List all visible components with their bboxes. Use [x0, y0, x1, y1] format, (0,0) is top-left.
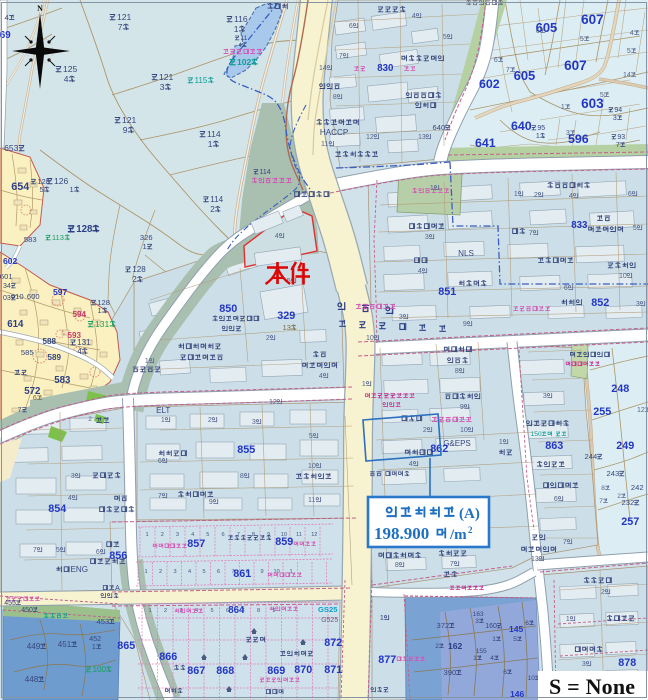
svg-text:1: 1	[234, 24, 239, 34]
svg-text:4: 4	[569, 193, 573, 200]
svg-text:6: 6	[349, 23, 353, 30]
svg-text:115: 115	[195, 76, 208, 85]
svg-text:HACCP: HACCP	[320, 128, 348, 137]
svg-text:865: 865	[117, 640, 135, 652]
svg-text:128: 128	[37, 177, 50, 186]
svg-text:155: 155	[476, 648, 487, 655]
svg-text:5: 5	[309, 433, 313, 440]
svg-text:5: 5	[633, 225, 637, 232]
svg-text:ELT: ELT	[156, 406, 170, 415]
svg-text:8: 8	[395, 562, 399, 569]
svg-text:11: 11	[308, 497, 315, 504]
svg-text:(A): (A)	[459, 506, 480, 522]
svg-text:594: 594	[73, 310, 87, 319]
svg-text:113: 113	[52, 233, 64, 242]
svg-text:5: 5	[627, 48, 631, 55]
svg-text:6: 6	[564, 285, 568, 292]
svg-text:854: 854	[48, 503, 66, 515]
svg-text:600: 600	[27, 292, 40, 301]
svg-text:451: 451	[58, 640, 72, 649]
svg-text:11: 11	[241, 35, 248, 42]
svg-text:872: 872	[324, 637, 342, 649]
svg-text:589: 589	[48, 353, 62, 362]
svg-text:640: 640	[433, 123, 446, 132]
svg-text:869: 869	[267, 665, 285, 677]
svg-text:640: 640	[511, 119, 532, 133]
svg-text:597: 597	[53, 287, 68, 297]
svg-text:868: 868	[216, 665, 234, 677]
svg-text:607: 607	[564, 58, 587, 73]
svg-text:150: 150	[531, 431, 542, 438]
svg-text:9: 9	[463, 321, 467, 328]
svg-text:1: 1	[70, 185, 74, 194]
svg-text:862: 862	[430, 443, 448, 455]
svg-text:2: 2	[435, 643, 439, 650]
svg-text:1: 1	[92, 644, 96, 651]
svg-text:6: 6	[628, 191, 632, 198]
svg-text:2: 2	[601, 589, 605, 596]
svg-text:6: 6	[222, 532, 225, 538]
svg-text:6: 6	[158, 458, 162, 465]
svg-text:163: 163	[473, 611, 484, 618]
svg-text:2: 2	[423, 427, 427, 434]
svg-text:605: 605	[514, 68, 536, 83]
svg-text:583: 583	[54, 375, 71, 386]
svg-text:871: 871	[324, 664, 342, 676]
svg-text:8: 8	[601, 485, 605, 492]
svg-text:8: 8	[240, 473, 244, 480]
svg-text:3: 3	[582, 661, 586, 668]
svg-text:1: 1	[161, 417, 165, 424]
svg-text:585: 585	[21, 348, 34, 357]
svg-text:5: 5	[443, 34, 447, 41]
svg-text:7: 7	[450, 561, 454, 568]
svg-text:7: 7	[158, 493, 162, 500]
svg-text:390: 390	[444, 668, 457, 677]
svg-text:870: 870	[294, 664, 312, 676]
svg-text:452: 452	[89, 636, 101, 643]
svg-text:372: 372	[437, 621, 450, 630]
svg-text:861: 861	[233, 568, 251, 580]
svg-text:602: 602	[3, 256, 18, 266]
svg-text:10: 10	[528, 675, 536, 682]
svg-text:1: 1	[536, 133, 540, 140]
svg-text:6: 6	[96, 549, 100, 556]
svg-text:3: 3	[636, 301, 640, 308]
svg-text:94: 94	[614, 107, 622, 114]
svg-text:588: 588	[43, 337, 57, 346]
svg-text:1: 1	[473, 655, 477, 662]
svg-text:102: 102	[237, 57, 252, 67]
svg-text:3: 3	[475, 618, 479, 625]
svg-text:8: 8	[333, 94, 337, 101]
svg-text:593: 593	[68, 331, 82, 340]
svg-text:34: 34	[3, 283, 11, 290]
svg-text:5: 5	[206, 532, 209, 538]
svg-text:1: 1	[208, 139, 213, 149]
svg-text:2: 2	[468, 525, 473, 535]
svg-text:2: 2	[617, 493, 621, 500]
svg-text:455: 455	[4, 600, 16, 607]
svg-text:864: 864	[228, 605, 245, 616]
svg-text:7: 7	[529, 230, 533, 237]
svg-text:7: 7	[563, 539, 567, 546]
svg-text:4: 4	[630, 30, 634, 37]
svg-text:3: 3	[613, 115, 617, 122]
svg-text:1: 1	[98, 306, 102, 315]
svg-text:ENG: ENG	[71, 565, 89, 574]
svg-text:852: 852	[591, 297, 609, 309]
svg-text:641: 641	[475, 136, 496, 150]
svg-text:248: 248	[611, 383, 629, 395]
svg-text:1: 1	[146, 532, 149, 538]
svg-text:1: 1	[566, 616, 570, 623]
svg-text:863: 863	[545, 440, 563, 452]
svg-text:G525: G525	[321, 617, 338, 624]
svg-text:830: 830	[377, 63, 393, 74]
svg-text:2: 2	[132, 275, 137, 284]
svg-text:5: 5	[580, 36, 584, 43]
svg-text:11: 11	[296, 532, 302, 538]
svg-text:4: 4	[77, 347, 82, 356]
svg-text:859: 859	[275, 536, 293, 548]
svg-text:95: 95	[537, 125, 545, 132]
svg-text:255: 255	[593, 406, 611, 418]
svg-text:607: 607	[581, 12, 604, 27]
svg-text:1: 1	[430, 185, 434, 192]
svg-text:1: 1	[143, 242, 147, 251]
svg-text:5: 5	[203, 569, 206, 575]
svg-text:160: 160	[485, 623, 497, 630]
svg-text:2: 2	[534, 192, 538, 199]
svg-text:450: 450	[21, 607, 33, 614]
svg-text:2: 2	[88, 416, 92, 423]
svg-text:14: 14	[319, 65, 327, 72]
svg-text:4: 4	[188, 569, 191, 575]
svg-text:7: 7	[339, 53, 343, 60]
svg-text:6: 6	[536, 28, 540, 35]
svg-text:257: 257	[621, 516, 639, 528]
svg-text:11: 11	[321, 141, 328, 148]
svg-text:100: 100	[93, 665, 107, 674]
svg-text:13: 13	[418, 134, 426, 141]
svg-text:1: 1	[561, 104, 565, 111]
svg-text:198.900: 198.900	[374, 524, 429, 543]
svg-text:121: 121	[122, 115, 137, 125]
svg-text:13: 13	[283, 323, 291, 332]
svg-text:145: 145	[509, 624, 524, 634]
svg-text:5: 5	[211, 608, 214, 614]
svg-text:448: 448	[25, 675, 39, 684]
svg-text:3: 3	[399, 314, 403, 321]
svg-text:4: 4	[275, 233, 279, 240]
svg-text:114: 114	[260, 169, 271, 176]
svg-text:9: 9	[209, 499, 213, 506]
svg-text:3: 3	[71, 473, 75, 480]
svg-text:8: 8	[257, 608, 260, 614]
svg-text:8: 8	[455, 368, 459, 375]
svg-text:1: 1	[145, 358, 149, 365]
svg-text:131: 131	[95, 319, 110, 329]
svg-text:S = None: S = None	[549, 674, 635, 699]
svg-text:03: 03	[3, 295, 11, 302]
svg-text:6: 6	[494, 57, 498, 64]
svg-text:244: 244	[585, 452, 598, 461]
svg-text:125: 125	[63, 64, 78, 74]
svg-text:12: 12	[637, 407, 645, 414]
svg-text:12: 12	[311, 532, 317, 538]
svg-text:9: 9	[261, 569, 264, 575]
svg-text:5: 5	[513, 636, 517, 643]
svg-text:7: 7	[599, 498, 603, 505]
svg-text:654: 654	[11, 181, 29, 193]
svg-text:1: 1	[492, 636, 496, 643]
svg-text:1: 1	[380, 615, 384, 622]
svg-text:2: 2	[159, 569, 162, 575]
svg-text:93: 93	[617, 134, 625, 141]
svg-text:329: 329	[277, 310, 295, 322]
svg-text:4: 4	[64, 74, 69, 84]
svg-text:4: 4	[418, 268, 422, 275]
svg-text:2: 2	[208, 417, 212, 424]
svg-text:4: 4	[238, 42, 242, 49]
svg-text:1: 1	[149, 608, 152, 614]
svg-text:3: 3	[252, 419, 256, 426]
svg-text:114: 114	[210, 195, 223, 204]
svg-text:851: 851	[438, 286, 456, 298]
svg-text:877: 877	[378, 654, 396, 666]
svg-text:9: 9	[123, 125, 128, 135]
svg-text:6: 6	[525, 620, 529, 627]
svg-text:3: 3	[160, 82, 165, 92]
svg-text:N: N	[37, 4, 43, 13]
svg-text:3: 3	[176, 532, 179, 538]
svg-text:13: 13	[531, 556, 539, 563]
svg-text:242: 242	[631, 483, 644, 492]
svg-text:5: 5	[40, 185, 44, 194]
svg-text:4: 4	[5, 13, 9, 22]
svg-text:1: 1	[514, 191, 518, 198]
svg-text:653: 653	[4, 143, 19, 153]
svg-text:10: 10	[619, 273, 627, 280]
svg-text:2: 2	[210, 205, 215, 214]
svg-text:583: 583	[24, 235, 37, 244]
svg-text:5: 5	[56, 547, 60, 554]
svg-text:128: 128	[132, 265, 146, 274]
svg-text:4: 4	[412, 13, 416, 20]
svg-text:3: 3	[543, 393, 547, 400]
svg-text:1: 1	[362, 381, 366, 388]
svg-text:856: 856	[109, 550, 127, 562]
svg-text:7: 7	[616, 142, 620, 149]
svg-text:4: 4	[319, 373, 323, 380]
svg-text:1: 1	[145, 569, 148, 575]
svg-text:12: 12	[366, 134, 374, 141]
svg-text:243: 243	[607, 469, 620, 478]
svg-text:162: 162	[448, 641, 463, 651]
svg-text:GS25: GS25	[318, 605, 338, 614]
svg-text:12: 12	[269, 399, 277, 406]
svg-text:6: 6	[33, 395, 37, 402]
svg-text:6: 6	[503, 669, 507, 676]
svg-text:121: 121	[159, 72, 174, 82]
svg-text:867: 867	[187, 665, 205, 677]
svg-text:6: 6	[554, 496, 558, 503]
svg-text:NLS: NLS	[458, 249, 474, 258]
svg-text:326: 326	[140, 233, 153, 242]
svg-text:855: 855	[237, 444, 255, 456]
svg-text:232: 232	[622, 498, 635, 507]
svg-text:4: 4	[490, 655, 494, 662]
svg-text:10: 10	[366, 335, 374, 342]
svg-text:3: 3	[425, 234, 429, 241]
svg-text:7: 7	[118, 22, 123, 32]
svg-text:4: 4	[409, 461, 413, 468]
svg-text:2: 2	[266, 335, 270, 342]
svg-text:121: 121	[117, 12, 132, 22]
svg-text:610: 610	[11, 292, 24, 301]
svg-text:7: 7	[33, 547, 37, 554]
svg-text:850: 850	[219, 303, 237, 315]
svg-text:1: 1	[499, 439, 503, 446]
svg-text:114: 114	[207, 129, 221, 139]
svg-text:2: 2	[164, 608, 167, 614]
svg-text:3: 3	[566, 130, 570, 137]
svg-text:833: 833	[571, 220, 588, 231]
svg-text:/m: /m	[449, 527, 467, 543]
svg-text:126: 126	[54, 176, 69, 186]
svg-text:7: 7	[506, 67, 510, 74]
svg-text:14: 14	[623, 72, 631, 79]
svg-text:878: 878	[618, 657, 636, 669]
svg-text:249: 249	[616, 440, 634, 452]
svg-text:9: 9	[460, 404, 464, 411]
svg-text:5: 5	[600, 92, 604, 99]
svg-text:866: 866	[159, 651, 177, 663]
svg-text:2: 2	[161, 532, 164, 538]
svg-text:602: 602	[479, 77, 500, 91]
svg-text:4: 4	[68, 495, 72, 502]
svg-text:857: 857	[187, 538, 205, 550]
svg-text:3: 3	[174, 569, 177, 575]
svg-text:449: 449	[27, 642, 41, 651]
svg-text:10: 10	[308, 463, 316, 470]
svg-text:614: 614	[7, 319, 24, 330]
svg-text:128: 128	[76, 224, 93, 235]
svg-text:453: 453	[97, 617, 110, 626]
svg-text:A: A	[115, 585, 120, 592]
svg-text:10: 10	[460, 427, 468, 434]
svg-text:7: 7	[18, 407, 22, 414]
svg-text:6: 6	[217, 569, 220, 575]
svg-text:116: 116	[234, 14, 248, 24]
